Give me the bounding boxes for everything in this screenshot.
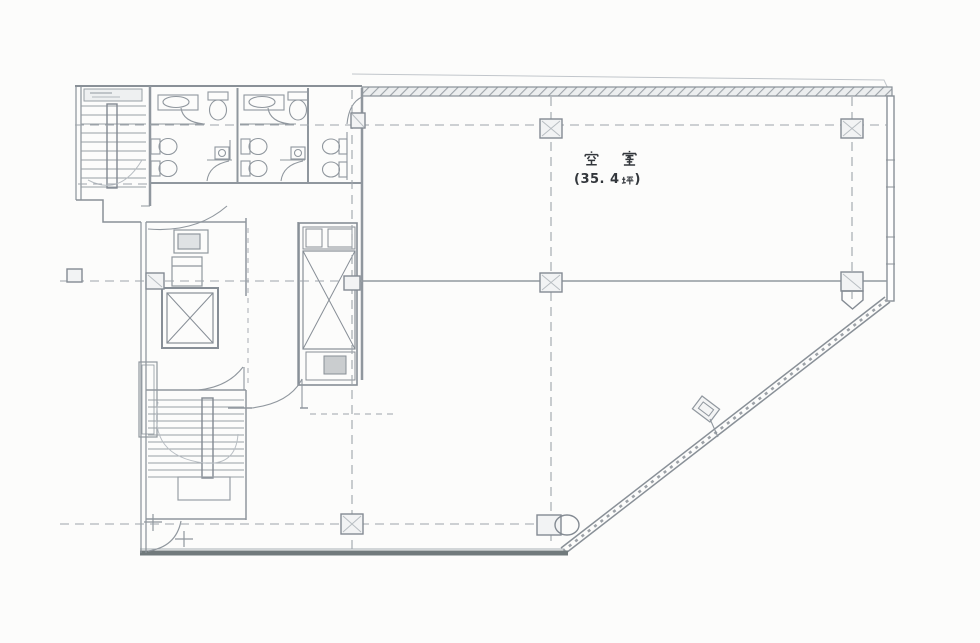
door-arc	[198, 367, 243, 390]
column-marker-with-ellipse	[537, 515, 579, 535]
entry-door-arc	[148, 206, 227, 230]
wc-tank	[339, 139, 347, 154]
stair-landing	[178, 477, 230, 500]
stair-top-box	[84, 89, 142, 101]
cross-marker	[144, 514, 162, 531]
toilet-tank	[288, 92, 308, 100]
wc-bowl	[249, 161, 267, 177]
column-marker	[351, 113, 365, 128]
column-markers	[67, 113, 863, 535]
room-name	[583, 150, 641, 168]
column-marker	[540, 119, 562, 138]
room-area: (35. 4 )	[574, 172, 641, 187]
room-label: (35. 4 )	[583, 150, 641, 187]
kanji-tsubo-unit	[621, 173, 634, 186]
toilet-tank	[208, 92, 228, 100]
top-wall-hatched	[362, 87, 892, 96]
stair-walk-line	[88, 160, 142, 185]
lower-staircase	[148, 398, 244, 500]
upper-staircase	[81, 89, 146, 188]
area-prefix: (35. 4	[574, 172, 620, 187]
sink-basin	[163, 97, 189, 108]
column-marker	[67, 269, 82, 282]
toilet-room-1	[151, 92, 229, 181]
grid-lines	[60, 90, 887, 552]
diagonal-wall-inner	[561, 297, 885, 548]
area-suffix: )	[635, 172, 641, 187]
wc-bowl	[323, 139, 340, 154]
toilet-bowl	[210, 100, 227, 120]
stall-toilet	[291, 147, 305, 159]
stair-walk-line	[156, 402, 238, 463]
diagonal-wall-fixture	[692, 396, 719, 437]
wc-bowl	[159, 139, 177, 155]
door-arc	[252, 379, 302, 408]
wc-bowl	[249, 139, 267, 155]
column-marker	[146, 273, 164, 289]
wc-bowl	[159, 161, 177, 177]
kanji-vacant	[583, 150, 600, 167]
column-marker	[540, 273, 562, 292]
floor-plan-page: (35. 4 )	[0, 0, 980, 643]
door-arc	[207, 161, 229, 181]
diagonal-wall-hatch	[564, 300, 888, 551]
interior-walls	[141, 86, 362, 520]
wc-bowl	[323, 162, 340, 177]
toilet-right-section	[323, 97, 363, 177]
floor-plan-drawing	[0, 0, 980, 643]
column-marker	[344, 276, 360, 290]
kanji-room	[621, 150, 638, 167]
column-marker	[341, 514, 363, 534]
stair-rail	[202, 398, 213, 478]
elevator-shaft-1	[162, 288, 218, 348]
cross-marker	[175, 531, 193, 547]
service-room	[172, 230, 208, 286]
left-step	[76, 200, 141, 222]
door-arc	[281, 161, 303, 181]
sink-basin	[249, 97, 275, 108]
outer-walls	[75, 74, 894, 553]
diagonal-wall-outer	[566, 302, 890, 553]
toilet-bowl	[290, 100, 307, 120]
stall-toilet	[215, 147, 229, 159]
column-marker	[841, 119, 863, 138]
wc-tank	[339, 162, 347, 177]
stair-rail	[107, 104, 117, 188]
toilet-room-2	[241, 92, 308, 181]
right-wall	[887, 96, 894, 301]
doors	[148, 206, 302, 408]
elevator-shaft-2	[299, 223, 357, 385]
column-marker-with-pin	[841, 272, 863, 309]
